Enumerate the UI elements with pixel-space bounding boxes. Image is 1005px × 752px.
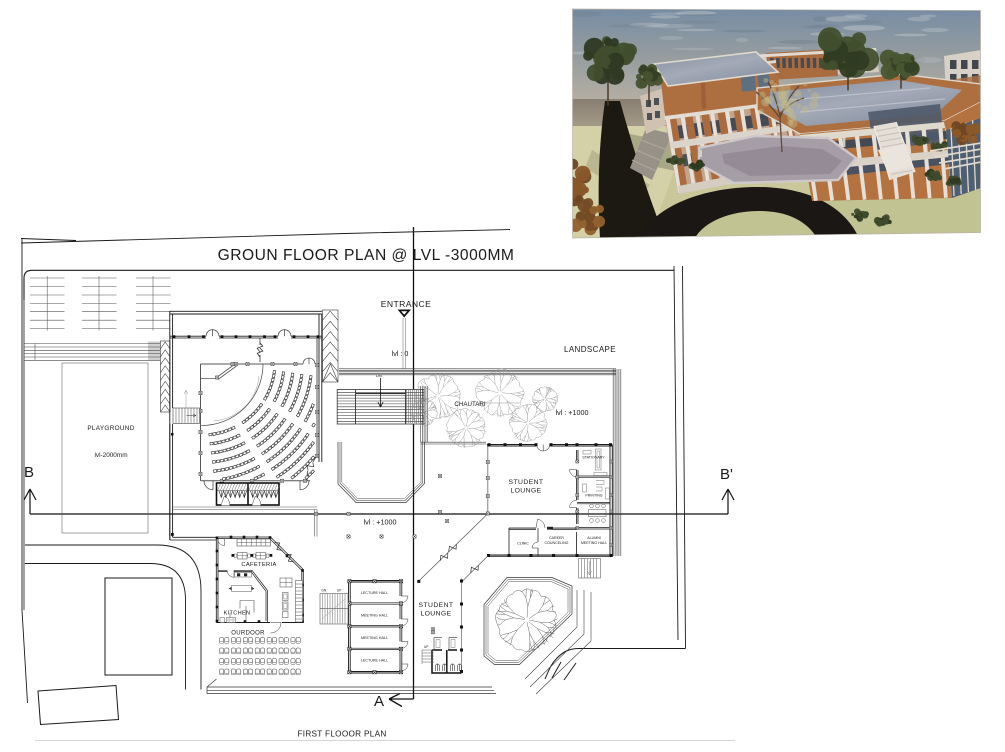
svg-text:lvl-2000mm: lvl-2000mm xyxy=(94,452,127,459)
svg-text:LANDSCAPE: LANDSCAPE xyxy=(564,345,616,354)
svg-text:STUDENT: STUDENT xyxy=(419,602,454,609)
svg-text:OURDOOR: OURDOOR xyxy=(231,631,265,637)
svg-text:lvl : 0: lvl : 0 xyxy=(392,349,409,358)
svg-text:ENTRANCE: ENTRANCE xyxy=(381,299,431,309)
svg-text:STUDENT: STUDENT xyxy=(509,479,544,486)
svg-text:KITCHEN: KITCHEN xyxy=(224,611,251,617)
svg-text:LOUNGE: LOUNGE xyxy=(510,488,541,495)
svg-text:CAREER: CAREER xyxy=(549,536,564,540)
svg-text:LOUNGE: LOUNGE xyxy=(420,611,451,618)
svg-text:lvl : +1000: lvl : +1000 xyxy=(556,408,589,417)
svg-text:FIRST FLOOOR PLAN: FIRST FLOOOR PLAN xyxy=(297,730,386,739)
svg-text:DN: DN xyxy=(322,589,327,593)
svg-text:ALUMNI: ALUMNI xyxy=(587,536,601,540)
svg-text:COUNCELING: COUNCELING xyxy=(545,541,569,545)
svg-text:CAFETERIA: CAFETERIA xyxy=(241,562,276,568)
svg-text:GROUN FLOOR PLAN @ LVL -3000MM: GROUN FLOOR PLAN @ LVL -3000MM xyxy=(218,247,515,264)
svg-text:PRINTING: PRINTING xyxy=(585,494,602,498)
svg-text:MEETING HALL: MEETING HALL xyxy=(361,614,388,618)
svg-text:DN: DN xyxy=(376,373,382,378)
svg-text:UP: UP xyxy=(424,645,428,649)
svg-text:UP: UP xyxy=(337,589,341,593)
svg-text:CHAUTARI: CHAUTARI xyxy=(454,401,485,408)
svg-text:CLINIC: CLINIC xyxy=(517,542,529,546)
svg-text:LECTURE HALL: LECTURE HALL xyxy=(361,591,388,595)
svg-text:B': B' xyxy=(720,466,733,483)
svg-text:lvl : +1000: lvl : +1000 xyxy=(364,518,397,527)
svg-text:LECTURE HALL: LECTURE HALL xyxy=(361,659,388,663)
svg-text:A: A xyxy=(374,693,384,710)
svg-text:B: B xyxy=(24,464,34,481)
svg-text:MEETING HALL: MEETING HALL xyxy=(581,541,607,545)
svg-text:PLAYGROUND: PLAYGROUND xyxy=(87,425,134,432)
svg-text:MEETING HALL: MEETING HALL xyxy=(361,636,388,640)
svg-text:STATIONARY: STATIONARY xyxy=(582,456,605,460)
